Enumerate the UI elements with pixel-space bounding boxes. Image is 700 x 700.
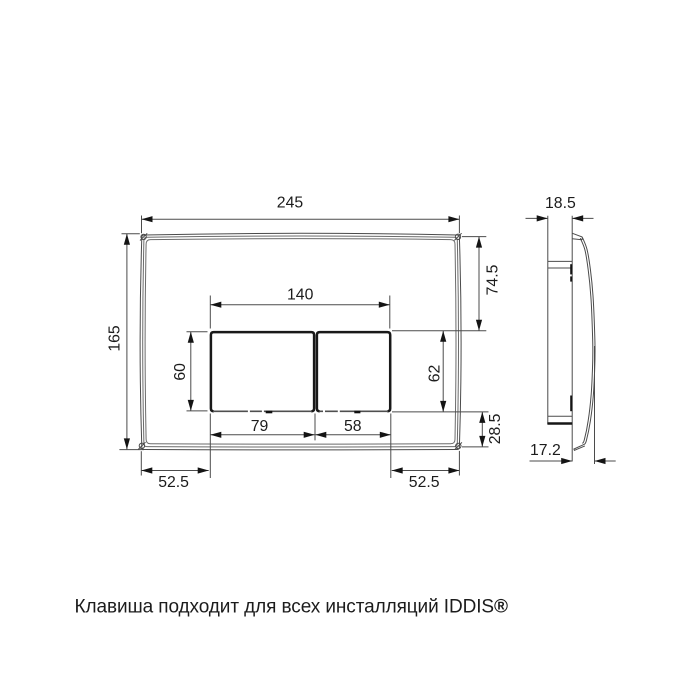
svg-text:52.5: 52.5 — [158, 474, 189, 491]
svg-text:60: 60 — [172, 363, 189, 381]
svg-text:245: 245 — [277, 195, 304, 212]
svg-text:62: 62 — [426, 365, 443, 383]
svg-text:74.5: 74.5 — [484, 264, 501, 295]
svg-text:165: 165 — [106, 325, 123, 352]
svg-text:58: 58 — [344, 418, 362, 435]
svg-text:Клавиша подходит для всех инст: Клавиша подходит для всех инсталляций ID… — [75, 596, 509, 617]
svg-text:140: 140 — [287, 286, 314, 303]
svg-text:79: 79 — [251, 418, 269, 435]
svg-text:52.5: 52.5 — [409, 474, 440, 491]
svg-text:17.2: 17.2 — [530, 442, 561, 459]
svg-text:18.5: 18.5 — [545, 195, 576, 212]
svg-text:28.5: 28.5 — [487, 413, 504, 444]
